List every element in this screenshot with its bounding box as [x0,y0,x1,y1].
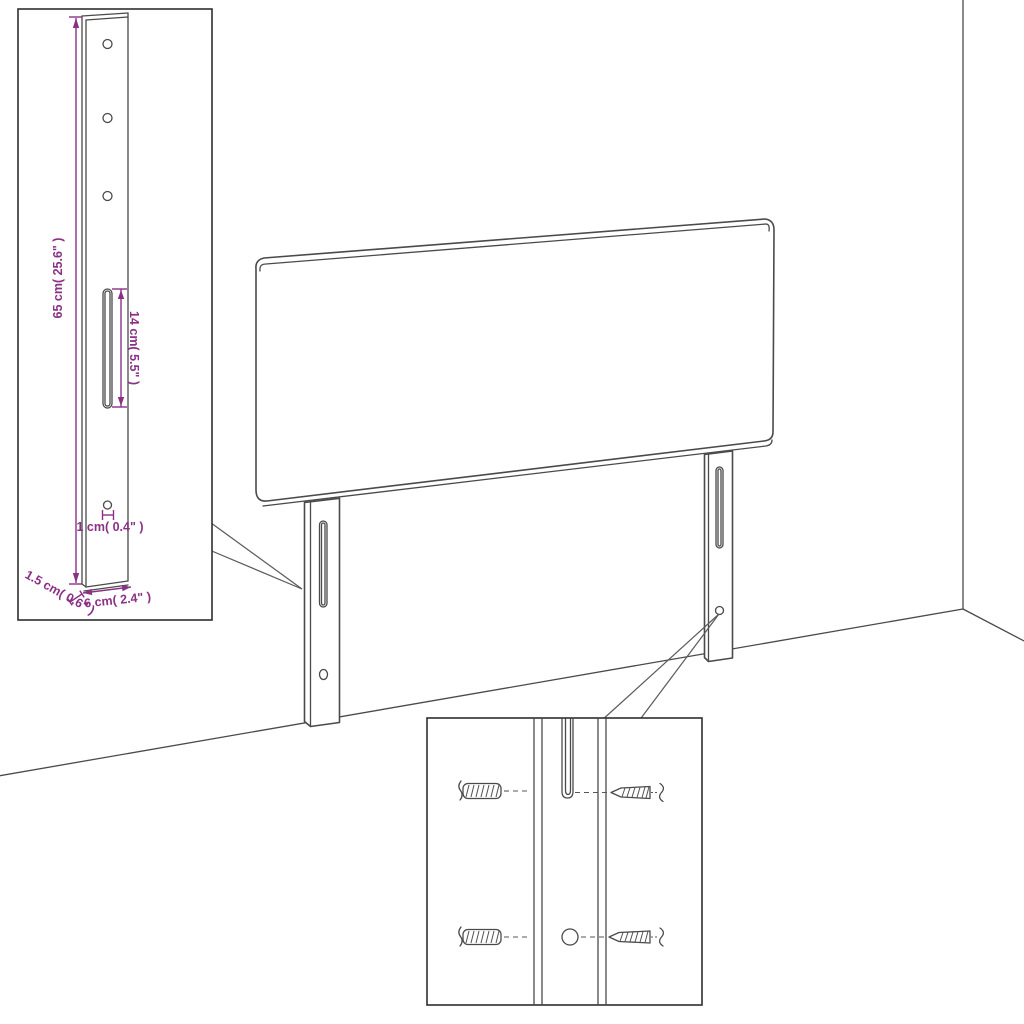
callout-left-inset-to-leg [207,520,302,589]
leg-detail-inset: 65 cm( 25.6" ) 14 cm( 5.5" ) 1 cm( 0.4" … [18,9,212,620]
callout-hole-to-hardware-inset [601,614,719,721]
headboard-right-leg [705,451,733,662]
headboard-left-leg [305,498,340,726]
headboard-panel-outline [256,219,774,501]
floor-line-right [963,609,1024,642]
leg-height-label: 65 cm( 25.6" ) [51,238,65,319]
assembly-diagram-svg: 65 cm( 25.6" ) 14 cm( 5.5" ) 1 cm( 0.4" … [0,0,1024,1024]
slot-length-label: 14 cm( 5.5" ) [127,311,141,385]
hardware-inset-border [427,718,702,1005]
headboard [256,219,774,727]
hardware-inset [427,718,702,1005]
diagram-canvas: 65 cm( 25.6" ) 14 cm( 5.5" ) 1 cm( 0.4" … [0,0,1024,1024]
callout-line [601,614,719,721]
callout-line [640,614,719,720]
hole-diameter-label: 1 cm( 0.4" ) [76,520,143,534]
